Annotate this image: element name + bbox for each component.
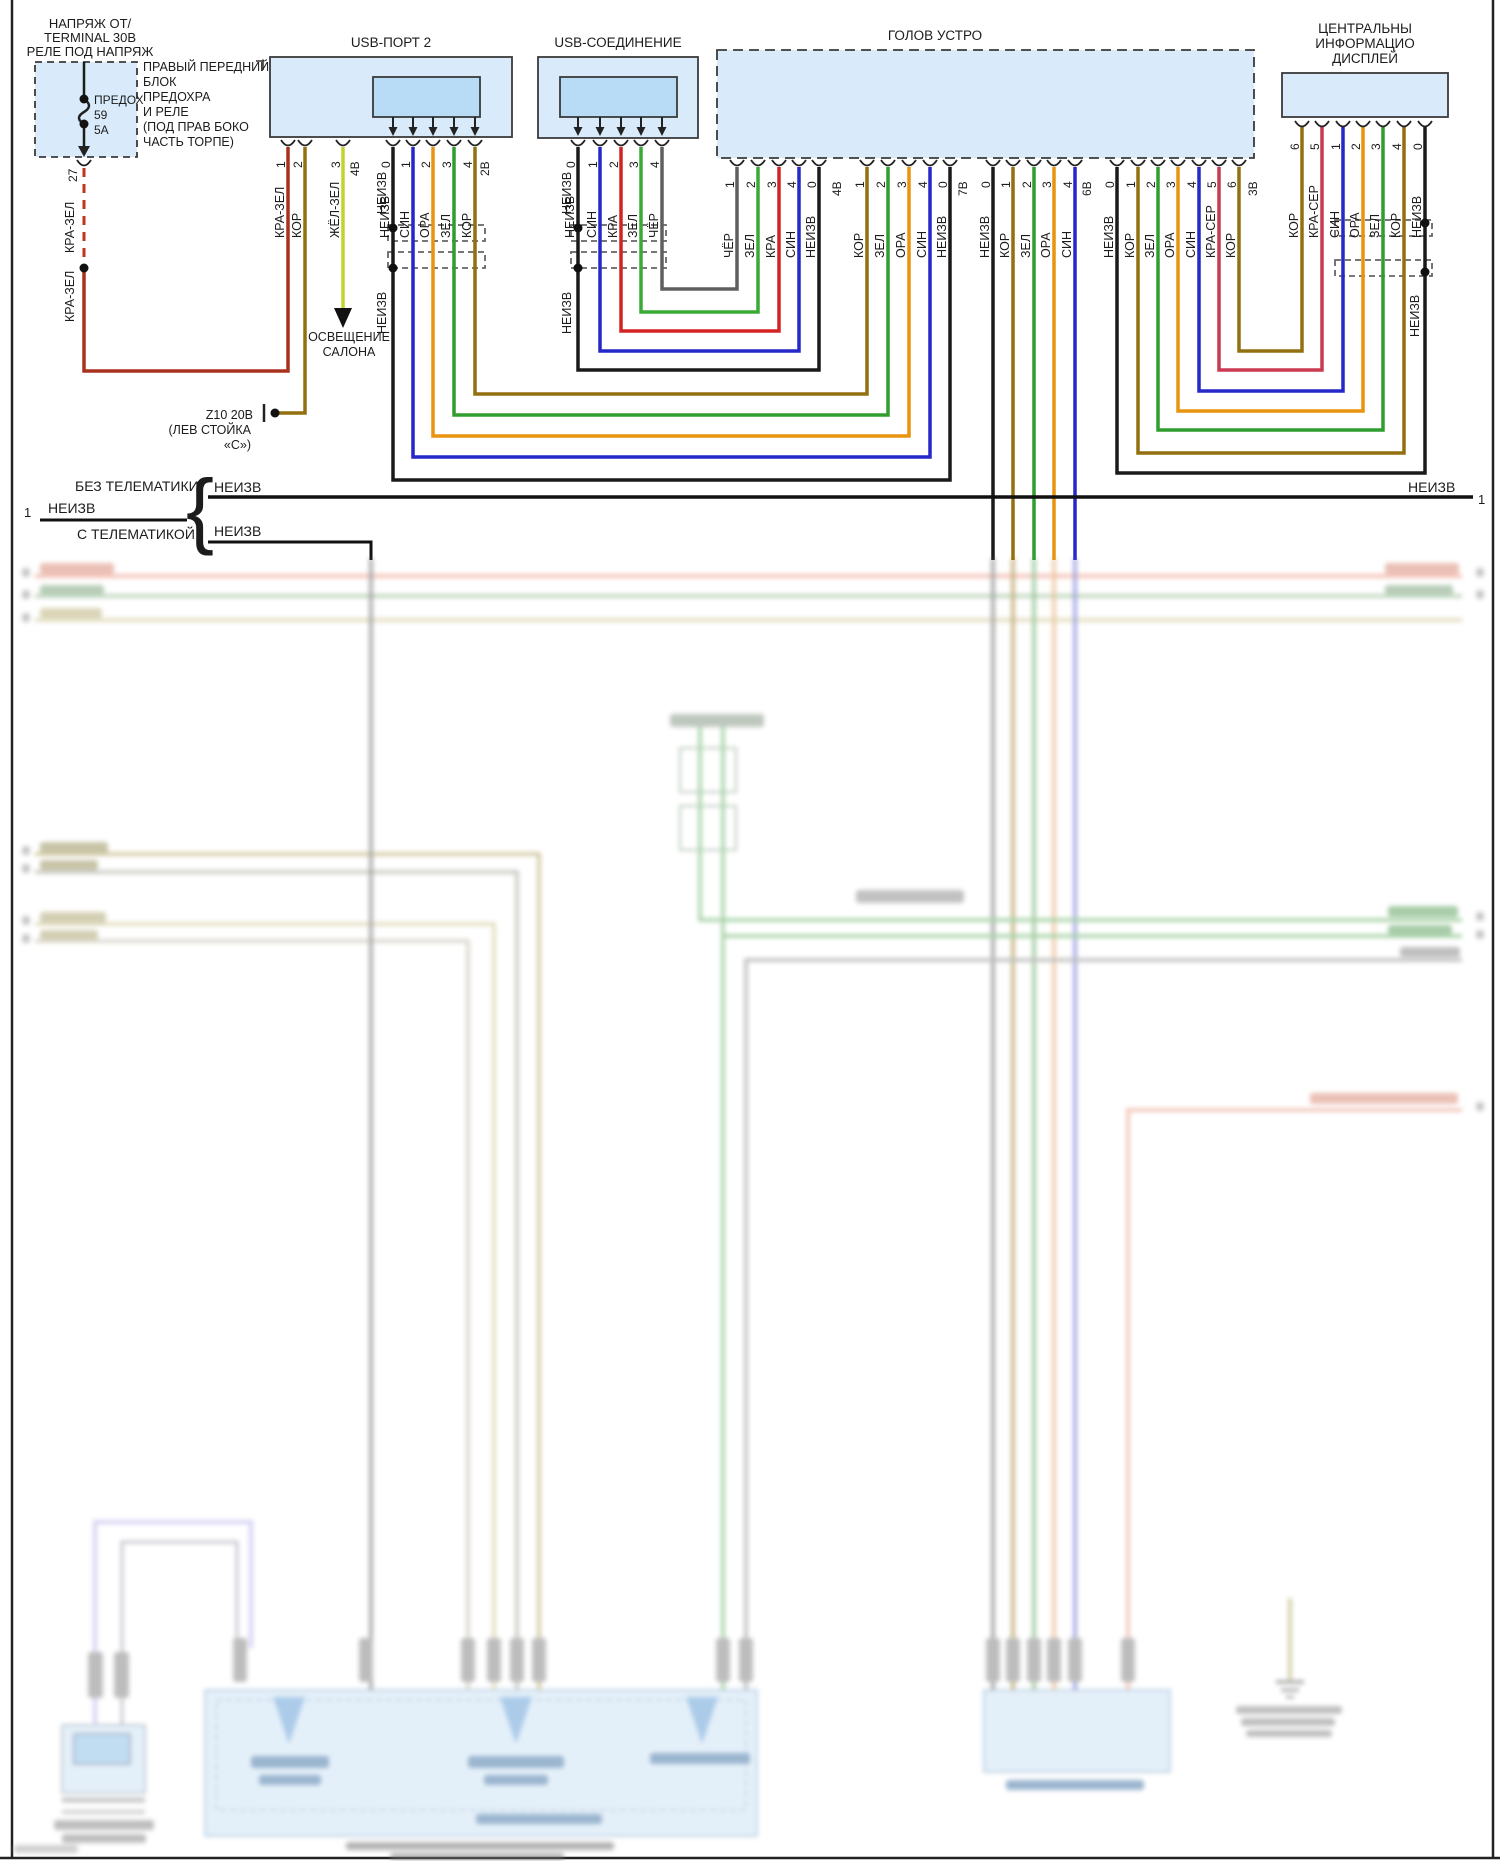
blurred-label xyxy=(346,1842,614,1850)
junction-dot-icon xyxy=(80,120,89,129)
blurred-label xyxy=(1385,585,1453,595)
fuse-side-line: И РЕЛЕ xyxy=(143,105,189,119)
pin-arc-icon xyxy=(1397,121,1411,127)
usb_port2-inner-box xyxy=(373,77,480,117)
junction-dot-icon xyxy=(1421,268,1430,277)
wire-color-label: НЕИЗВ xyxy=(1102,216,1116,258)
blurred-label xyxy=(1476,568,1484,577)
wire-groupd-zel xyxy=(1158,127,1383,430)
faded-line-olive1 xyxy=(35,854,539,1690)
blurred-label xyxy=(739,1638,753,1682)
pin-number: 4 xyxy=(1185,181,1199,188)
blurred-label xyxy=(22,590,30,599)
pin-arc-icon xyxy=(1315,121,1329,127)
wire-color-label: ОРА xyxy=(894,232,908,258)
device-inner xyxy=(74,1734,130,1764)
pin-number: 1 xyxy=(274,161,288,168)
blurred-label xyxy=(468,1756,564,1768)
blurred-label xyxy=(22,568,30,577)
with-telematics-label: С ТЕЛЕМАТИКОЙ xyxy=(77,525,195,542)
wire-color-label: КОР xyxy=(1123,233,1137,258)
pin-arc-icon xyxy=(336,140,350,146)
wire-color-label: НЕИЗВ xyxy=(804,216,818,258)
pin-arc-icon xyxy=(281,140,295,146)
blurred-label xyxy=(856,890,964,903)
fuse-title-line3: РЕЛЕ ПОД НАПРЯЖ xyxy=(27,44,154,59)
brace-glyph: { xyxy=(186,462,214,556)
fuse-rating: 5А xyxy=(94,123,109,137)
pin-arc-icon xyxy=(986,160,1000,166)
wire-color-label: ЗЕЛ xyxy=(1143,234,1157,258)
wiring-diagram-svg: НАПРЯЖ ОТ/TERMINAL 30ВРЕЛЕ ПОД НАПРЯЖПРА… xyxy=(0,0,1500,1861)
blurred-label xyxy=(22,846,30,855)
wire-color-label: КОР xyxy=(1287,213,1301,238)
wire-color-label: НЕИЗВ xyxy=(1410,196,1424,238)
wire-color-label: КОР xyxy=(1389,213,1403,238)
pin-number: 3 xyxy=(627,161,641,168)
pin-arc-icon xyxy=(655,140,669,146)
wire-color-label: НЕИЗВ xyxy=(978,216,992,258)
pin-number: 4 xyxy=(916,181,930,188)
blurred-label xyxy=(1476,1102,1484,1111)
wire-color-label: ЖЁЛ-ЗЕЛ xyxy=(328,182,342,238)
blurred-label xyxy=(40,930,98,940)
wire-color-label: ЗЕЛ xyxy=(439,214,453,238)
pin-arc-icon xyxy=(1356,121,1370,127)
blurred-label xyxy=(1241,1718,1335,1726)
pin-arc-icon xyxy=(1131,160,1145,166)
wire-color-label: КРА-СЕР xyxy=(1204,205,1218,258)
blurred-label xyxy=(1476,912,1484,921)
wire-usb2-zel xyxy=(454,147,888,415)
pin-arc-icon xyxy=(614,140,628,146)
blurred-label xyxy=(1121,1638,1135,1682)
pin-number: 2 xyxy=(874,181,888,188)
wire-color-label: НЕИЗВ xyxy=(935,216,949,258)
pin-arc-icon xyxy=(1212,160,1226,166)
blurred-label xyxy=(40,563,114,574)
ground-label: «С») xyxy=(224,438,251,452)
blurred-label xyxy=(1310,1093,1458,1104)
blurred-label xyxy=(1246,1730,1332,1737)
wire-color-label: ЗЕЛ xyxy=(1368,214,1382,238)
wire-conn-cher xyxy=(662,147,737,289)
pin-arc-icon xyxy=(426,140,440,146)
blurred-label xyxy=(1385,563,1459,574)
connector-id-label: 6В xyxy=(1080,181,1094,196)
am-connector-1 xyxy=(680,748,736,792)
blurred-label xyxy=(532,1638,546,1682)
wire-color-label: КРА xyxy=(764,234,778,258)
blurred-label xyxy=(1047,1638,1061,1682)
display-title: ЦЕНТРАЛЬНЫ xyxy=(1318,21,1412,36)
fuse-name: ПРЕДОХ xyxy=(94,93,144,107)
pin-number: 2 xyxy=(1349,143,1363,150)
neizv-right-label: НЕИЗВ xyxy=(1408,479,1455,495)
wire-color-label: КРА xyxy=(606,214,620,238)
pin-arc-icon xyxy=(1068,160,1082,166)
junction-dot-icon xyxy=(574,264,583,273)
pin-number: 1 xyxy=(853,181,867,188)
pin-number: 5 xyxy=(1205,181,1219,188)
blurred-label xyxy=(1027,1638,1041,1682)
pin-arc-icon xyxy=(1232,160,1246,166)
pin-number: 4 xyxy=(648,161,662,168)
pin-number: 3 xyxy=(1040,181,1054,188)
blurred-label xyxy=(390,1853,564,1860)
wire-color-label: ЧЁР xyxy=(722,233,736,258)
blurred-label xyxy=(54,1820,154,1830)
blurred-label xyxy=(40,860,98,870)
usb_conn-inner-box xyxy=(560,77,677,117)
wiring-diagram-page: НАПРЯЖ ОТ/TERMINAL 30ВРЕЛЕ ПОД НАПРЯЖПРА… xyxy=(0,0,1500,1861)
connector-id-label: 4В xyxy=(348,161,362,176)
pin-arc-icon xyxy=(1171,160,1185,166)
pin-arc-icon xyxy=(571,140,585,146)
usb_conn-title: USB-СОЕДИНЕНИЕ xyxy=(554,35,681,50)
junction-dot-icon xyxy=(80,264,89,273)
pin-number: 2 xyxy=(607,161,621,168)
fuse-number: 59 xyxy=(94,108,108,122)
blurred-label xyxy=(461,1638,475,1682)
display-title: ДИСПЛЕЙ xyxy=(1332,51,1398,66)
blurred-label xyxy=(22,864,30,873)
faded-line-tan1 xyxy=(35,924,494,1690)
blurred-lower-section xyxy=(14,558,1484,1860)
head_unit-box xyxy=(717,50,1254,158)
pin-number: 2 xyxy=(291,161,305,168)
wire-color-label: СИН xyxy=(915,231,929,258)
head_unit-title: ГОЛОВ УСТРО xyxy=(888,28,982,43)
pin-arc-icon xyxy=(812,160,826,166)
splice-box xyxy=(388,252,485,268)
wire-groupd-neizv xyxy=(1117,127,1425,473)
pin-number: 4 xyxy=(1061,181,1075,188)
blurred-label xyxy=(1068,1638,1082,1682)
pin-arc-icon xyxy=(1110,160,1124,166)
pin-number: 1 xyxy=(1329,143,1343,150)
pin-arc-icon xyxy=(860,160,874,166)
wire-color-label: ЗЕЛ xyxy=(873,234,887,258)
pin-number: 1 xyxy=(586,161,600,168)
pin-arc-icon xyxy=(298,140,312,146)
wire-color-label: НЕИЗВ xyxy=(378,196,392,238)
pin-arc-icon xyxy=(1047,160,1061,166)
without-telematics-label: БЕЗ ТЕЛЕМАТИКИ xyxy=(75,478,199,494)
faded-gray-tele xyxy=(746,960,1462,1690)
wire-usb2-sin xyxy=(413,147,930,457)
pin-arc-icon xyxy=(1295,121,1309,127)
wire-color-label: КОР xyxy=(998,233,1012,258)
junction-dot-icon xyxy=(389,264,398,273)
pin-arc-icon xyxy=(751,160,765,166)
blurred-label xyxy=(476,1814,602,1824)
pin-number: 3 xyxy=(1164,181,1178,188)
blurred-label xyxy=(40,912,106,923)
pin-number: 1 xyxy=(999,181,1013,188)
pin-arc-icon xyxy=(1151,160,1165,166)
wire-color-label: ОРА xyxy=(1039,232,1053,258)
pin-number: 3 xyxy=(1369,143,1383,150)
splice-box xyxy=(571,252,666,268)
blurred-label xyxy=(1006,1780,1144,1790)
faded-green-1 xyxy=(700,726,1462,920)
wire-color-label: ЗЕЛ xyxy=(1019,234,1033,258)
blurred-label xyxy=(22,934,30,943)
pin-arc-icon xyxy=(881,160,895,166)
pin-number: 3 xyxy=(440,161,454,168)
wire-groupd-kor6 xyxy=(1239,127,1302,351)
junction-dot-icon xyxy=(271,409,280,418)
pin-number: 4 xyxy=(1390,143,1404,150)
pin-number: 1 xyxy=(723,181,737,188)
blurred-label xyxy=(716,1638,730,1682)
wire-label-neizv: НЕИЗВ xyxy=(1408,295,1422,337)
pin-number: 0 xyxy=(1103,181,1117,188)
pin-27: 27 xyxy=(66,168,80,182)
fuse-side-line: ЧАСТЬ ТОРПЕ) xyxy=(143,135,234,149)
splice-number-right: 1 xyxy=(1478,492,1485,507)
wire-color-label: НЕИЗВ xyxy=(563,196,577,238)
blurred-label xyxy=(88,1652,103,1698)
wire-color-label: КОР xyxy=(852,233,866,258)
pin-arc-icon xyxy=(1006,160,1020,166)
fuse-title-line2: TERMINAL 30В xyxy=(44,30,136,45)
pin-arc-icon xyxy=(792,160,806,166)
blurred-label xyxy=(1476,590,1484,599)
neizv-main-label: НЕИЗВ xyxy=(48,500,95,516)
blurred-label xyxy=(510,1638,524,1682)
fuse-side-line: (ПОД ПРАВ БОКО xyxy=(143,120,249,134)
pin-number: 0 xyxy=(979,181,993,188)
blurred-label xyxy=(259,1775,321,1785)
wire-label-neizv: НЕИЗВ xyxy=(375,292,389,334)
blurred-label xyxy=(1388,906,1458,917)
blurred-label xyxy=(1236,1706,1342,1714)
blurred-label xyxy=(233,1638,247,1682)
wire-neizv-branch xyxy=(208,542,371,560)
display-component: ЦЕНТРАЛЬНЫИНФОРМАЦИОДИСПЛЕЙ6КОР5КРА-СЕР1… xyxy=(1282,21,1448,238)
blurred-label xyxy=(114,1652,129,1698)
display-title: ИНФОРМАЦИО xyxy=(1315,36,1415,51)
blurred-label xyxy=(22,916,30,925)
pin-number: 1 xyxy=(399,161,413,168)
pin-number: 3 xyxy=(765,181,779,188)
blurred-label xyxy=(22,613,30,622)
blurred-label xyxy=(62,1834,146,1843)
pin-number: 0 xyxy=(564,161,578,168)
salon-arrow-icon xyxy=(334,308,352,328)
connector-id-label: 7В xyxy=(956,181,970,196)
display-box xyxy=(1282,73,1448,117)
blurred-label xyxy=(1388,925,1452,935)
pin-number: 2 xyxy=(419,161,433,168)
pin-number: 6 xyxy=(1288,143,1302,150)
wire-color-label: ОРА xyxy=(418,212,432,238)
pin-arc-icon xyxy=(447,140,461,146)
pin-arc-icon xyxy=(1376,121,1390,127)
wire-label-kra-zel: КРА-ЗЕЛ xyxy=(63,271,77,322)
bottom-box-right xyxy=(984,1690,1170,1772)
ground-label: (ЛЕВ СТОЙКА xyxy=(168,422,251,437)
pin-number: 2 xyxy=(1020,181,1034,188)
pin-arc-icon xyxy=(386,140,400,146)
connector-id-label: 2В xyxy=(478,161,492,176)
blurred-label xyxy=(40,842,108,853)
splice-number-left: 1 xyxy=(24,505,31,520)
blurred-label xyxy=(251,1756,329,1768)
wire-color-label: КОР xyxy=(290,213,304,238)
ground-label: Z10 20В xyxy=(206,408,253,422)
wire-color-label: СИН xyxy=(1184,231,1198,258)
fuse-side-line: ПРЕДОХРА xyxy=(143,90,211,104)
pin-arc-icon xyxy=(923,160,937,166)
pin-arc-icon xyxy=(772,160,786,166)
blurred-label xyxy=(986,1638,1000,1682)
salon-light-label: САЛОНА xyxy=(323,345,376,359)
wire-color-label: СИН xyxy=(784,231,798,258)
wire-color-label: ОРА xyxy=(1348,212,1362,238)
pin-arc-icon xyxy=(1027,160,1041,166)
wire-color-label: СИН xyxy=(1060,231,1074,258)
pin-number: 2 xyxy=(744,181,758,188)
connector-id-label: 3В xyxy=(1246,181,1260,196)
wire-color-label: СИН xyxy=(1328,211,1342,238)
pin-number: 1 xyxy=(1124,181,1138,188)
fuse-title-line1: НАПРЯЖ ОТ/ xyxy=(49,16,132,31)
branch-bottom-label: НЕИЗВ xyxy=(214,523,261,539)
pin-number: 0 xyxy=(805,181,819,188)
wire-label-neizv: НЕИЗВ xyxy=(560,292,574,334)
pin-arc-icon xyxy=(1418,121,1432,127)
pin-number: 5 xyxy=(1308,143,1322,150)
blurred-label xyxy=(650,1753,750,1764)
pin-number: 6 xyxy=(1225,181,1239,188)
pin-arc-icon xyxy=(1336,121,1350,127)
faded-line-gray1 xyxy=(35,872,517,1690)
blurred-label xyxy=(1400,947,1460,957)
blurred-label xyxy=(487,1638,501,1682)
pin-arc-icon xyxy=(468,140,482,146)
pin-arc-icon xyxy=(1192,160,1206,166)
pin-number: 3 xyxy=(895,181,909,188)
pin-number: 4 xyxy=(785,181,799,188)
pin-arc-icon xyxy=(593,140,607,146)
pin-arc-icon xyxy=(406,140,420,146)
pin-arc-icon xyxy=(634,140,648,146)
pin-number: 0 xyxy=(1411,143,1425,150)
blurred-label xyxy=(359,1638,373,1682)
blurred-label xyxy=(1476,930,1484,939)
fuse-side-line: ПРАВЫЙ ПЕРЕДНИЙ xyxy=(143,59,269,74)
wire-conn-neizv xyxy=(578,147,819,370)
pin-number: 0 xyxy=(379,161,393,168)
faded-salmon-right xyxy=(1128,1110,1462,1690)
wire-color-label: КОР xyxy=(1224,233,1238,258)
wire-color-label: КОР xyxy=(460,213,474,238)
pin-arc-icon xyxy=(902,160,916,166)
wire-color-label: СИН xyxy=(585,211,599,238)
blurred-label xyxy=(14,1845,78,1853)
blurred-label xyxy=(1006,1638,1020,1682)
usb_port2-title: USB-ПОРТ 2 xyxy=(351,35,431,50)
wire-kra-zel xyxy=(84,147,288,371)
blurred-label xyxy=(484,1775,548,1785)
wire-label-kra-zel: КРА-ЗЕЛ xyxy=(63,202,77,253)
wire-color-label: ЧЁР xyxy=(647,213,661,238)
connector-id-label: 4В xyxy=(830,181,844,196)
branch-top-label: НЕИЗВ xyxy=(214,479,261,495)
pin-number: 3 xyxy=(329,161,343,168)
junction-dot-icon xyxy=(80,95,89,104)
pin-number: 0 xyxy=(936,181,950,188)
wire-color-label: КРА-СЕР xyxy=(1307,185,1321,238)
blurred-label xyxy=(40,608,102,618)
fuse-pin-arc xyxy=(77,160,91,166)
wire-color-label: ЗЕЛ xyxy=(626,214,640,238)
pin-arc-icon xyxy=(943,160,957,166)
wire-color-label: КРА-ЗЕЛ xyxy=(273,187,287,238)
blurred-label xyxy=(670,714,764,727)
fuse-side-line: БЛОК xyxy=(143,75,177,89)
am-connector-2 xyxy=(680,806,736,850)
pin-arc-icon xyxy=(730,160,744,166)
blurred-label xyxy=(40,585,104,595)
wire-color-label: СИН xyxy=(398,211,412,238)
pin-number: 4 xyxy=(461,161,475,168)
wire-color-label: ОРА xyxy=(1163,232,1177,258)
pin-number: 2 xyxy=(1144,181,1158,188)
wire-color-label: ЗЕЛ xyxy=(743,234,757,258)
